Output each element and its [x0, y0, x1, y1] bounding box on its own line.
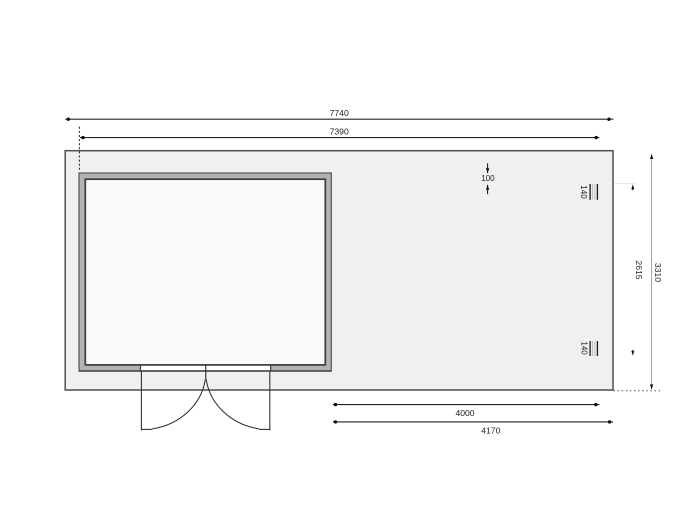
svg-text:3310: 3310	[653, 263, 663, 282]
svg-text:7740: 7740	[330, 108, 349, 118]
svg-text:140: 140	[579, 185, 588, 199]
svg-text:4000: 4000	[455, 408, 474, 418]
svg-text:4170: 4170	[481, 425, 500, 435]
svg-text:2615: 2615	[634, 260, 644, 279]
svg-text:7390: 7390	[330, 126, 349, 136]
svg-text:140: 140	[580, 341, 589, 355]
svg-text:100: 100	[481, 174, 495, 183]
